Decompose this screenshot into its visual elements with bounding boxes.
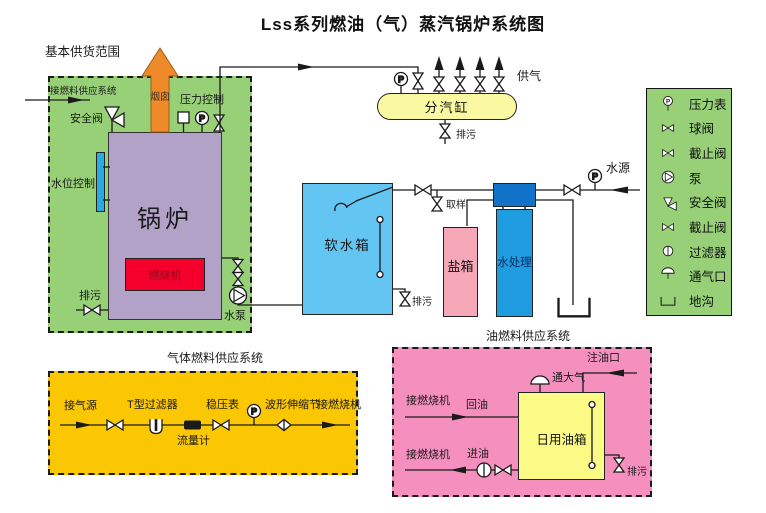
legend-row: 压力表 — [647, 91, 731, 115]
ball-valve-icon — [653, 117, 683, 139]
flow-meter-label: 流量计 — [177, 435, 210, 448]
pressure-gauge-icon — [653, 92, 683, 114]
steam-cylinder: 分汽缸 — [377, 93, 517, 120]
legend-label: 通气口 — [689, 266, 727, 285]
legend-label: 安全阀 — [689, 192, 727, 211]
gas-fuel-region — [48, 371, 358, 475]
water-treatment-label: 水处理 — [497, 254, 532, 270]
chimney-label: 烟囱 — [150, 92, 170, 104]
legend-label: 压力表 — [689, 94, 727, 113]
salt-tank: 盐箱 — [443, 227, 478, 317]
water-treatment-column: 水处理 — [496, 209, 533, 317]
legend-row: 过滤器 — [647, 239, 731, 263]
steam-supply-label: 供气 — [517, 70, 541, 84]
boiler-system-diagram: Lss系列燃油（气）蒸汽锅炉系统图 燃烧机 分汽缸 盐箱 水处理 日用油箱 压力… — [0, 0, 766, 513]
valve-icon — [415, 185, 431, 195]
salt-tank-label: 盐箱 — [444, 256, 477, 275]
legend-label: 地沟 — [689, 291, 714, 310]
fuel-inlet-label: 接燃料供应系统 — [50, 87, 117, 98]
scope-label: 基本供货范围 — [45, 45, 120, 59]
gas-system-title: 气体燃料供应系统 — [167, 352, 263, 366]
safety-valve-label: 安全阀 — [70, 113, 103, 126]
oil-inlet-burner-label: 接燃烧机 — [406, 449, 450, 462]
oil-system-title: 油燃料供应系统 — [486, 330, 570, 344]
flow-arrow-icon — [610, 187, 628, 194]
cylinder-blowdown-label: 排污 — [456, 130, 476, 142]
oil-return-burner-label: 接燃烧机 — [406, 395, 450, 408]
legend-row: 地沟 — [647, 289, 731, 313]
oil-return-label: 回油 — [466, 399, 488, 412]
filter-icon — [653, 240, 683, 262]
soft-tank-blowdown-label: 排污 — [412, 297, 432, 309]
soft-tank-feed-pipe — [393, 185, 493, 211]
pump-label: 水泵 — [224, 310, 246, 323]
fill-port-label: 注油口 — [587, 352, 620, 365]
cylinder-blowdown-pipe — [440, 120, 450, 144]
safety-valve-icon — [653, 191, 683, 213]
pressure-gauge-icon — [395, 73, 408, 94]
boiler-label: 锅炉 — [108, 206, 222, 234]
gas-source-label: 接气源 — [64, 400, 97, 413]
sampling-label: 取样 — [446, 200, 466, 212]
boiler-blowdown-label: 排污 — [79, 290, 101, 303]
stop-valve-icon — [653, 216, 683, 238]
legend-label: 过滤器 — [689, 242, 727, 261]
gas-to-burner-label: 接燃烧机 — [317, 399, 361, 412]
legend-row: 截止阀 — [647, 141, 731, 165]
regulator-label: 稳压表 — [206, 399, 239, 412]
stop-valve-icon — [653, 142, 683, 164]
water-source-label: 水源 — [606, 162, 630, 176]
water-level-gauge — [96, 152, 105, 212]
flow-arrow-icon — [298, 64, 314, 71]
legend-row: 泵 — [647, 165, 731, 189]
pump-icon — [653, 166, 683, 188]
pressure-control-label: 压力控制 — [180, 94, 224, 107]
daily-oil-tank: 日用油箱 — [518, 392, 605, 480]
drain-pipe — [536, 200, 590, 316]
legend-label: 截止阀 — [689, 217, 727, 236]
legend: 压力表 球阀 截止阀 泵 安全阀 截止阀 过滤器 通气口 地沟 — [646, 88, 732, 316]
soft-tank-label: 软水箱 — [302, 238, 393, 254]
valve-icon — [432, 197, 442, 211]
salt-link-pipe — [467, 200, 493, 226]
steam-supply-outlets — [434, 56, 504, 93]
legend-row: 安全阀 — [647, 190, 731, 214]
expansion-joint-label: 波形伸缩节 — [265, 399, 320, 412]
legend-row: 通气口 — [647, 264, 731, 288]
valve-icon — [440, 124, 450, 138]
burner-box: 燃烧机 — [125, 258, 205, 291]
diagram-title: Lss系列燃油（气）蒸汽锅炉系统图 — [0, 10, 766, 35]
legend-label: 截止阀 — [689, 143, 727, 162]
oil-blowdown-label: 排污 — [627, 467, 647, 479]
legend-row: 球阀 — [647, 116, 731, 140]
t-filter-label: T型过滤器 — [127, 399, 178, 412]
vent-icon — [653, 265, 683, 287]
trench-icon — [653, 290, 683, 312]
valve-icon — [400, 292, 410, 306]
trench-icon — [559, 298, 590, 317]
legend-row: 截止阀 — [647, 215, 731, 239]
soft-tank-blowdown — [393, 289, 410, 306]
pressure-gauge-icon — [589, 170, 602, 191]
vent-label: 通大气 — [552, 372, 585, 385]
water-level-label: 水位控制 — [51, 178, 95, 191]
oil-inlet-label: 进油 — [467, 448, 489, 461]
valve-icon — [413, 73, 423, 89]
legend-label: 球阀 — [689, 118, 714, 137]
legend-label: 泵 — [689, 168, 702, 187]
valve-icon — [564, 185, 580, 195]
water-treatment-head — [493, 183, 536, 207]
oil-tank-label: 日用油箱 — [519, 429, 604, 448]
